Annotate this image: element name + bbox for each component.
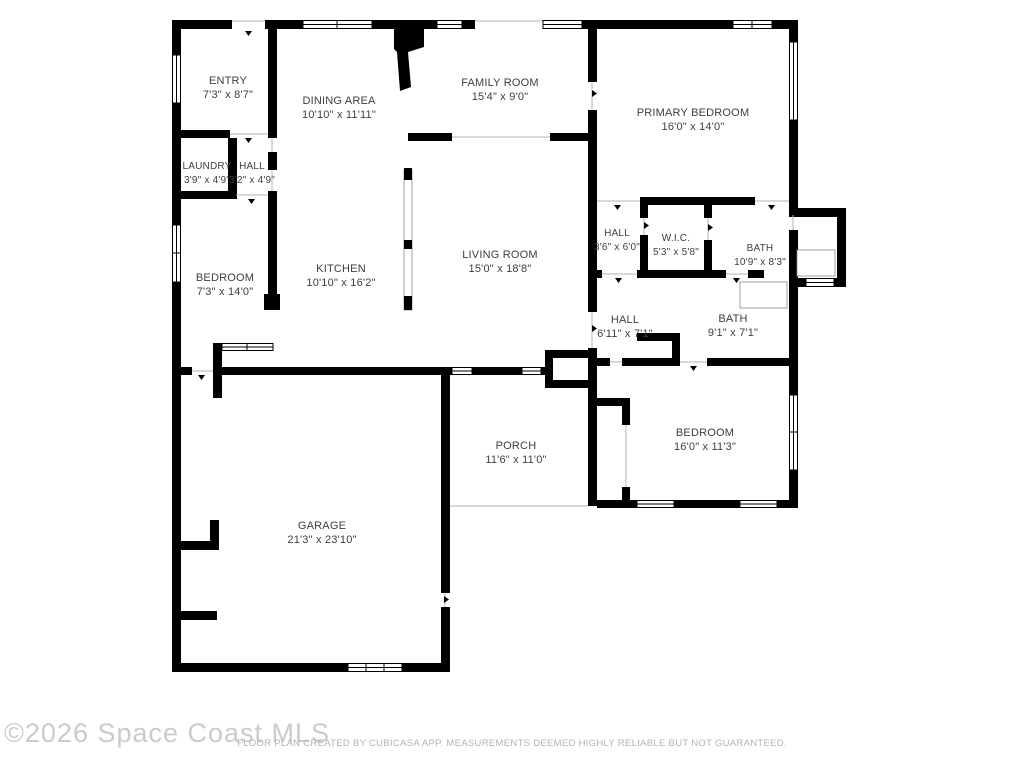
- window: [790, 42, 798, 120]
- room-dims: 16'0" x 11'3": [674, 441, 736, 453]
- floor-plan: ENTRY 7'3" x 8'7" DINING AREA 10'10" x 1…: [0, 0, 1024, 768]
- room-label-hall-lower: HALL 6'11" x 7'1": [597, 314, 653, 340]
- room-name: GARAGE: [298, 520, 346, 532]
- room-dims: 10'9" x 8'3": [734, 257, 786, 268]
- room-name: DINING AREA: [302, 95, 376, 107]
- room-label-garage: GARAGE 21'3" x 23'10": [287, 520, 356, 546]
- room-dims: 7'3" x 8'7": [203, 89, 253, 101]
- room-name: BATH: [747, 243, 774, 254]
- room-dims: 3'9" x 4'9": [184, 175, 230, 186]
- room-label-dining: DINING AREA 10'10" x 11'11": [302, 95, 376, 121]
- room-dims: 6'11" x 7'1": [597, 328, 653, 340]
- room-label-bedroom-left: BEDROOM 7'3" x 14'0": [196, 272, 254, 298]
- window: [806, 279, 834, 287]
- window: [637, 501, 674, 508]
- room-name: ENTRY: [209, 75, 248, 87]
- window: [452, 368, 472, 375]
- room-dims: 15'0" x 18'8": [469, 263, 532, 275]
- room-dims: 21'3" x 23'10": [287, 534, 356, 546]
- room-label-bath-hall: BATH 9'1" x 7'1": [708, 313, 758, 339]
- room-dims: 11'6" x 11'0": [485, 454, 546, 466]
- room-dims: 10'10" x 11'11": [302, 109, 376, 121]
- room-name: BATH: [718, 313, 747, 325]
- window: [733, 21, 772, 29]
- room-label-porch: PORCH 11'6" x 11'0": [485, 440, 546, 466]
- window: [522, 368, 541, 375]
- room-label-bath-primary: BATH 10'9" x 8'3": [734, 243, 786, 268]
- chimney: [394, 29, 424, 91]
- room-name: BEDROOM: [196, 272, 254, 284]
- room-label-wic: W.I.C. 5'3" x 5'8": [653, 233, 699, 258]
- window: [790, 395, 798, 470]
- room-name: LIVING ROOM: [462, 249, 538, 261]
- room-label-hall-mid: HALL 3'6" x 6'0": [594, 228, 640, 253]
- window: [173, 55, 181, 103]
- window: [543, 21, 582, 29]
- window: [437, 21, 462, 29]
- room-label-bedroom-right: BEDROOM 16'0" x 11'3": [674, 427, 736, 453]
- room-name: LAUNDRY: [182, 161, 231, 172]
- room-dims: 3'2" x 4'9": [229, 175, 275, 186]
- room-label-kitchen: KITCHEN 10'10" x 16'2": [306, 263, 375, 289]
- window: [303, 21, 372, 29]
- room-dims: 15'4" x 9'0": [472, 91, 529, 103]
- room-name: HALL: [611, 314, 639, 326]
- room-dims: 3'6" x 6'0": [594, 242, 640, 253]
- room-name: HALL: [239, 161, 265, 172]
- room-label-primary-bedroom: PRIMARY BEDROOM 16'0" x 14'0": [637, 107, 750, 133]
- room-label-laundry: LAUNDRY 3'9" x 4'9": [182, 161, 231, 186]
- floor-plan-page: ENTRY 7'3" x 8'7" DINING AREA 10'10" x 1…: [0, 0, 1024, 768]
- closet-doors: [222, 344, 273, 351]
- room-labels: ENTRY 7'3" x 8'7" DINING AREA 10'10" x 1…: [182, 75, 786, 546]
- room-name: PRIMARY BEDROOM: [637, 107, 750, 119]
- room-name: KITCHEN: [316, 263, 366, 275]
- room-name: BEDROOM: [676, 427, 734, 439]
- room-label-entry: ENTRY 7'3" x 8'7": [203, 75, 253, 101]
- room-label-living: LIVING ROOM 15'0" x 18'8": [462, 249, 538, 275]
- room-dims: 7'3" x 14'0": [197, 286, 254, 298]
- room-dims: 10'10" x 16'2": [306, 277, 375, 289]
- window: [740, 501, 777, 508]
- room-name: HALL: [604, 228, 630, 239]
- window: [173, 225, 181, 282]
- bathtub: [797, 250, 835, 276]
- room-dims: 16'0" x 14'0": [662, 121, 725, 133]
- disclaimer: FLOOR PLAN CREATED BY CUBICASA APP. MEAS…: [237, 738, 787, 749]
- room-label-family: FAMILY ROOM 15'4" x 9'0": [461, 77, 539, 103]
- room-name: PORCH: [496, 440, 537, 452]
- shower: [740, 282, 787, 308]
- garage-door: [348, 664, 402, 672]
- room-name: W.I.C.: [662, 233, 690, 244]
- room-dims: 9'1" x 7'1": [708, 327, 758, 339]
- room-dims: 5'3" x 5'8": [653, 247, 699, 258]
- room-name: FAMILY ROOM: [461, 77, 539, 89]
